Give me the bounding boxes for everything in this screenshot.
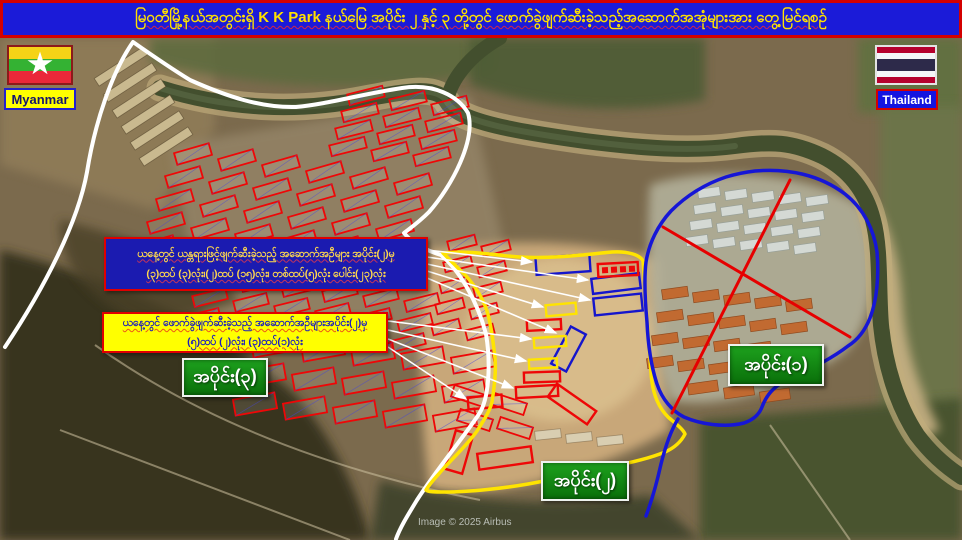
blast-demolished-line2: (၅)ထပ် (၂)လုံး၊ (၃)ထပ်(၁)လုံး	[104, 333, 386, 351]
thailand-flag	[875, 45, 937, 85]
page-title: မြဝတီမြို့နယ်အတွင်းရှိ K K Park နယ်မြေ အ…	[135, 8, 827, 30]
dot-mark	[629, 266, 635, 272]
blast-demolished-info-box: ယနေ့တွင် ဖောက်ခွဲဖျက်ဆီးခဲ့သည့် အဆောက်အဦ…	[102, 312, 388, 353]
section-2-label: အပိုင်း(၂)	[541, 461, 629, 501]
myanmar-label: Myanmar	[4, 88, 76, 110]
thailand-label: Thailand	[876, 89, 938, 110]
machine-demolished-line1: ယနေ့တွင် ယန္တရားဖြင့်ဖျက်ဆီးခဲ့သည့် အဆော…	[106, 244, 426, 264]
dot-mark	[611, 267, 617, 273]
myanmar-flag	[7, 45, 73, 85]
machine-demolished-info-box: ယနေ့တွင် ယန္တရားဖြင့်ဖျက်ဆီးခဲ့သည့် အဆော…	[104, 237, 428, 291]
blast-demolished-line1: ယနေ့တွင် ဖောက်ခွဲဖျက်ဆီးခဲ့သည့် အဆောက်အဦ…	[104, 314, 386, 332]
title-bar: မြဝတီမြို့နယ်အတွင်းရှိ K K Park နယ်မြေ အ…	[0, 0, 962, 38]
dot-mark	[620, 266, 626, 272]
imagery-credit: Image © 2025 Airbus	[418, 517, 512, 528]
section-3-label: အပိုင်း(၃)	[182, 358, 268, 397]
section-1-label: အပိုင်း(၁)	[728, 344, 824, 386]
myanmar-flag-star-icon	[27, 52, 53, 77]
dot-mark	[602, 267, 608, 273]
machine-demolished-line2: (၃)ထပ် (၃)လုံး၊(၂)ထပ် (၁၅)လုံး၊ တစ်ထပ်(၅…	[106, 264, 426, 284]
annotated-satellite-map: မြဝတီမြို့နယ်အတွင်းရှိ K K Park နယ်မြေ အ…	[0, 0, 962, 540]
